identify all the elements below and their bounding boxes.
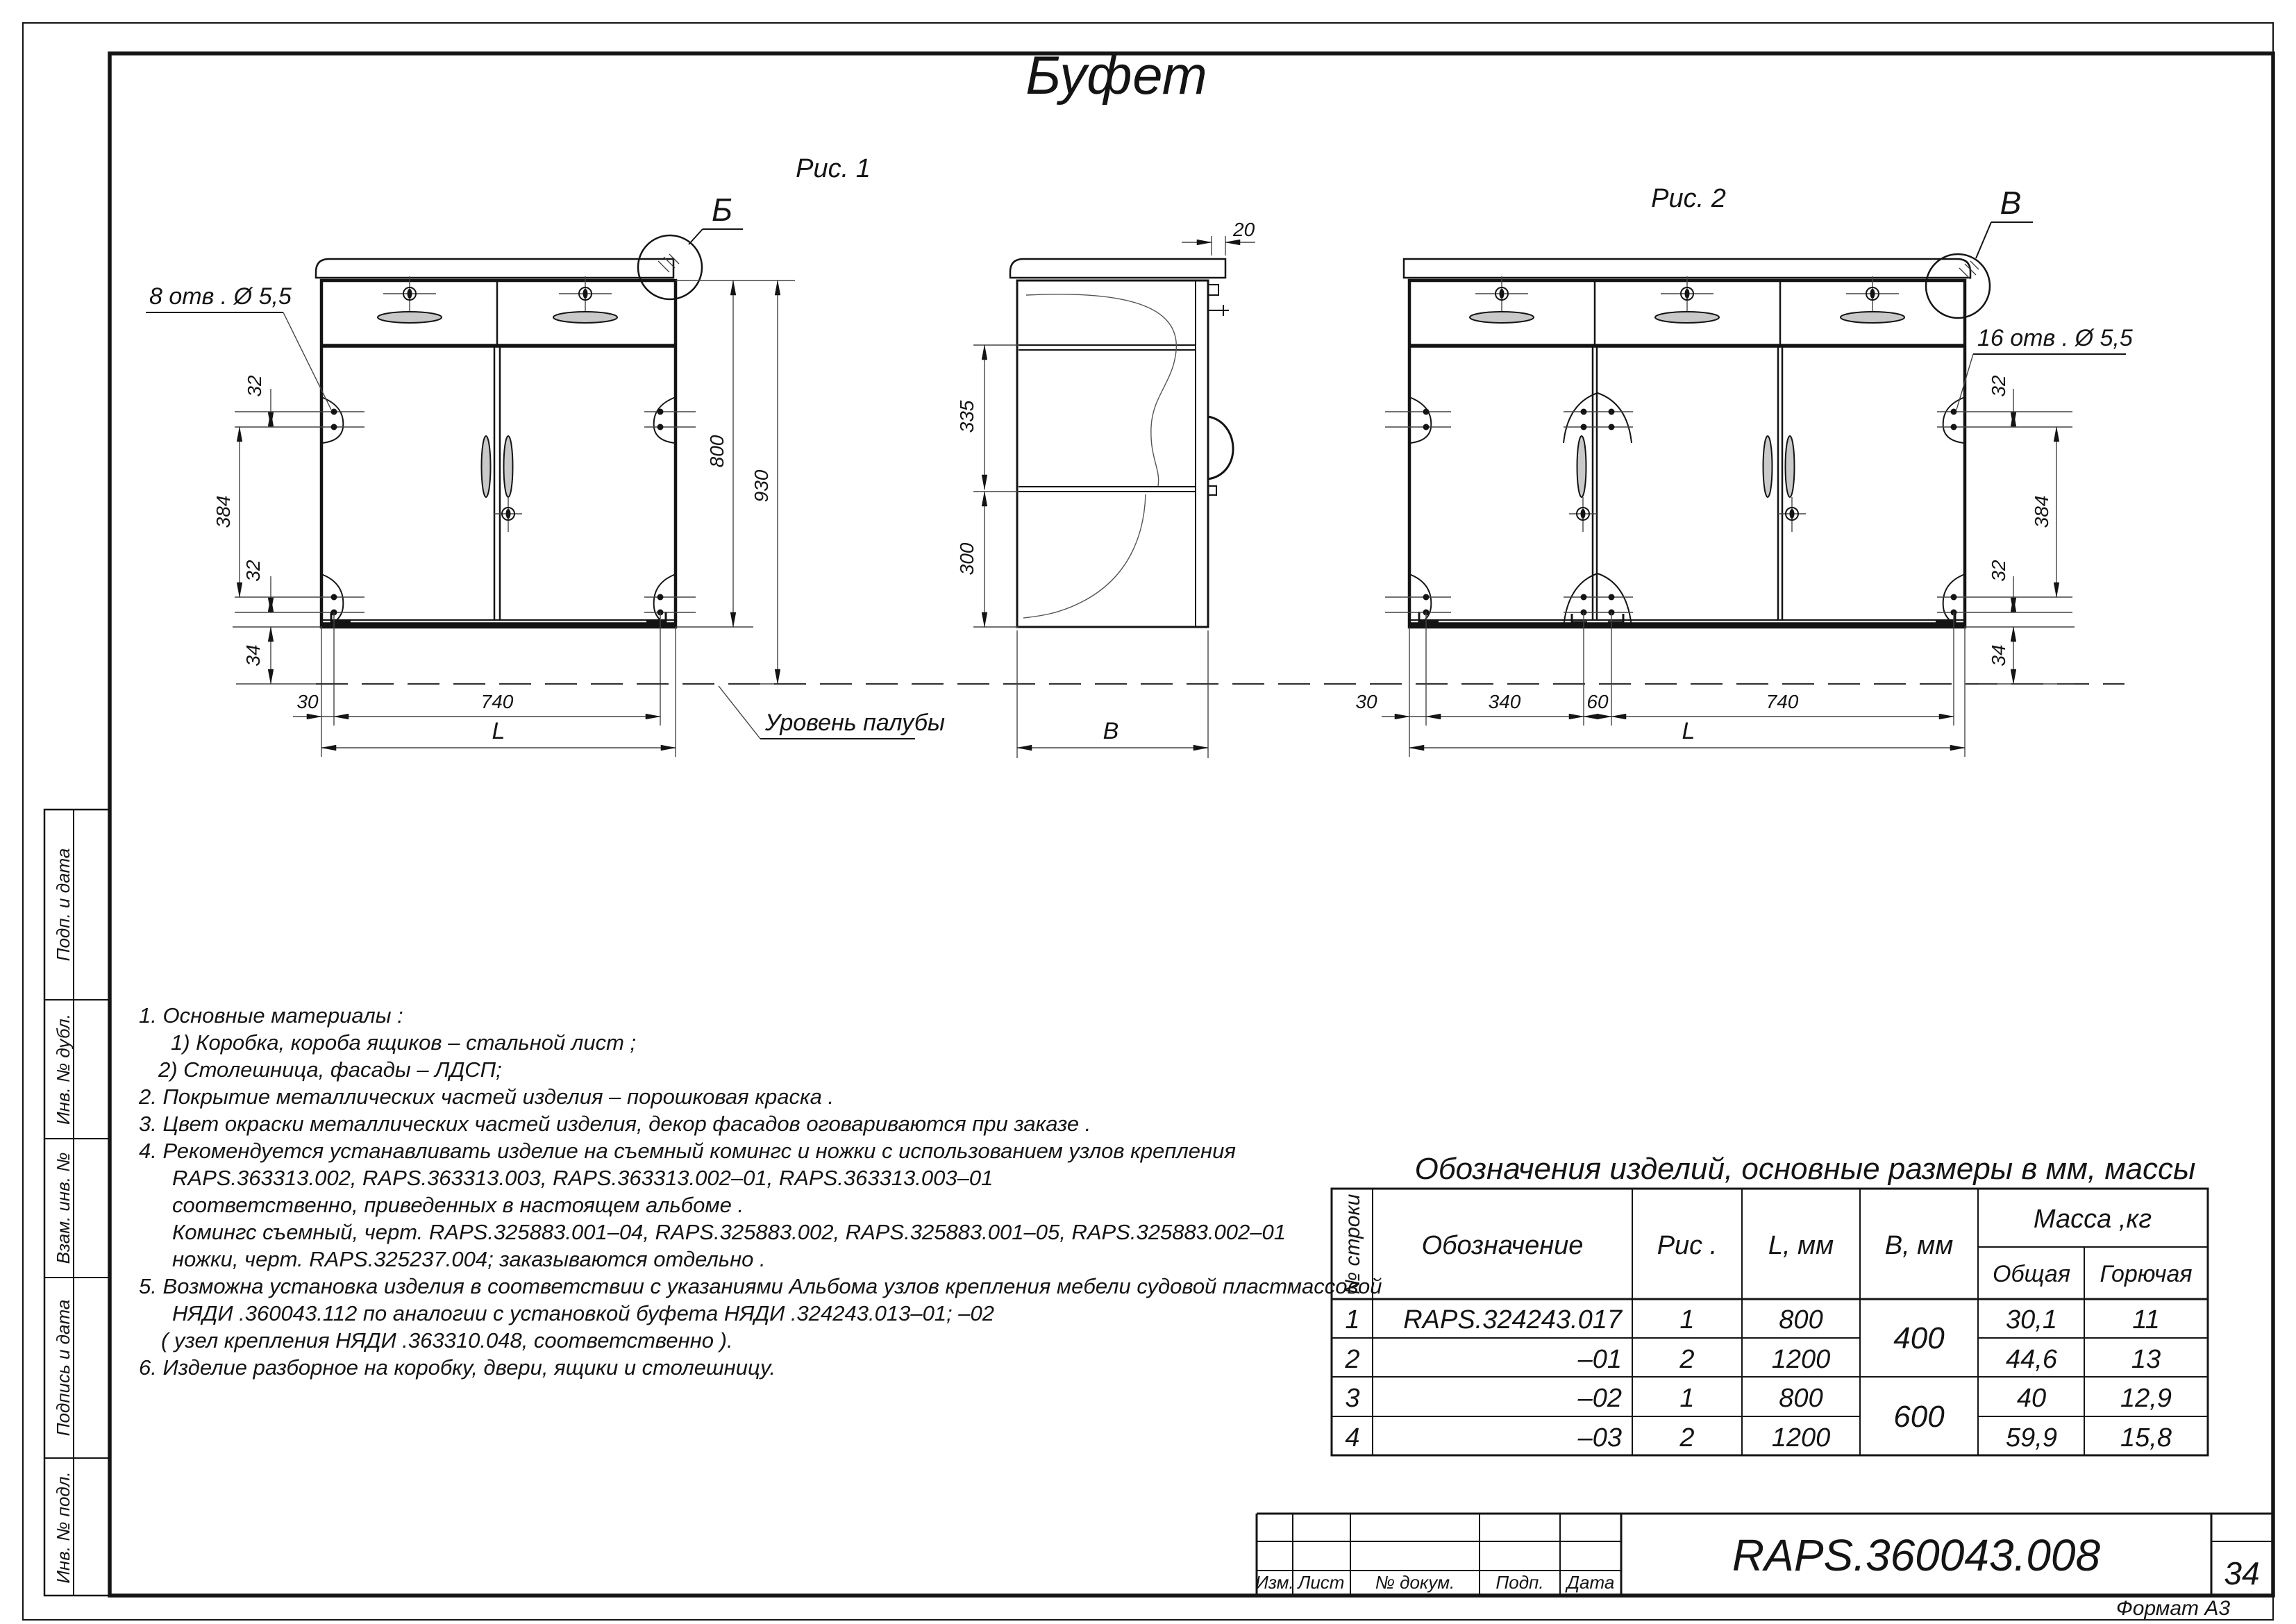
dim-30: 30 [1355,691,1377,712]
dim-740: 740 [1766,691,1799,712]
cell-b-merged: 400 [1893,1321,1945,1355]
sidebar-label: Инв. № подл. [53,1471,74,1583]
side-dims: 20 335 300 B [956,219,1255,758]
header-fig: Рис . [1657,1231,1718,1260]
dim-32: 32 [1988,560,2009,582]
doc-number: RAPS.360043.008 [1732,1530,2101,1580]
dim-384: 384 [212,496,234,528]
page-title: Буфет [1025,44,1207,106]
note-line: ( узел крепления НЯДИ .363310.048, соотв… [161,1328,733,1353]
header-b: В, мм [1885,1231,1954,1260]
sidebar-label: Подп. и дата [53,848,74,962]
sheet-number: 34 [2224,1555,2259,1591]
cell: 12,9 [2120,1384,2172,1413]
note-line: 3. Цвет окраски металлических частей изд… [139,1112,1091,1136]
dim-20: 20 [1232,219,1255,240]
fig1-dims-left: 32 384 32 34 [212,375,321,684]
dim-B: B [1103,718,1119,744]
dim-384: 384 [2031,496,2052,528]
sidebar-label: Подпись и дата [53,1300,74,1437]
header-mass-flammable: Горючая [2100,1261,2192,1287]
title-block: Изм. Лист № докум. Подп. Дата RAPS.36004… [1255,1514,2273,1620]
cell: 2 [1344,1345,1359,1374]
cell: 44,6 [2006,1345,2058,1374]
fig1-mounting-holes [235,409,696,616]
svg-text:8 отв . Ø 5,5: 8 отв . Ø 5,5 [149,283,292,310]
cell: 1 [1345,1305,1359,1334]
header-mass: Масса ,кг [2034,1205,2152,1234]
cell: 30,1 [2006,1305,2057,1334]
fig2-detail-label: В [2000,185,2022,221]
tb-label-doc-no: № докум. [1375,1572,1455,1593]
cell: 4 [1345,1423,1359,1453]
fig2-front-view: Рис. 2 [1355,184,2132,757]
fig1-detail-label: Б [712,192,732,228]
side-hidden-contour-lower [1023,494,1146,618]
fig2-drawer-hardware [1470,276,1904,323]
dim-L: L [492,718,505,744]
dim-32: 32 [244,375,265,397]
dim-60: 60 [1586,691,1609,712]
parts-table-title: Обозначения изделий, основные размеры в … [1415,1152,2196,1186]
drawing-canvas: Подп. и дата Инв. № дубл. Взам. инв. № П… [0,0,2296,1624]
dim-L: L [1682,718,1695,744]
cell: 1200 [1772,1423,1831,1453]
tb-label-data: Дата [1565,1572,1615,1593]
note-line: RAPS.363313.002, RAPS.363313.003, RAPS.3… [172,1166,993,1190]
deck-label: Уровень палубы [764,710,945,736]
dim-340: 340 [1489,691,1521,712]
dim-740: 740 [481,691,514,712]
fig2-callout: 16 отв . Ø 5,5 [1956,325,2133,410]
note-line: соответственно, приведенных в настоящем … [172,1193,744,1217]
dim-32: 32 [242,560,264,582]
dim-34: 34 [242,644,264,666]
sidebar-label: Взам. инв. № [53,1153,74,1264]
cell: 800 [1779,1305,1822,1334]
fig1-leg-brackets [321,397,676,627]
fig2-door-hardware [1569,436,1806,532]
tb-label-izm: Изм. [1255,1572,1293,1593]
fig2-mounting-holes [1385,409,2072,616]
dim-300: 300 [956,542,978,575]
cell: 13 [2131,1345,2161,1374]
notes-block: 1. Основные материалы : 1) Коробка, коро… [138,1003,1382,1380]
note-line: 6. Изделие разборное на коробку, двери, … [139,1355,776,1380]
note-line: 2) Столешница, фасады – ЛДСП; [158,1057,502,1082]
cell-b-merged: 600 [1893,1400,1945,1434]
cell: 15,8 [2120,1423,2172,1453]
fig1-detail-b: Б [638,192,743,299]
format-label: Формат А3 [2116,1597,2230,1620]
fig2-dims-right: 32 384 32 34 [1965,375,2075,684]
dim-30: 30 [296,691,319,712]
cell: 800 [1779,1384,1822,1413]
sidebar-strip: Подп. и дата Инв. № дубл. Взам. инв. № П… [44,810,110,1596]
side-hidden-contour-upper [1026,294,1176,486]
tb-label-list: Лист [1297,1572,1345,1593]
fig1-callout: 8 отв . Ø 5,5 [146,283,331,410]
fig1-door-hardware [482,436,523,532]
header-l: L, мм [1768,1231,1834,1260]
deck-level: Уровень палубы [316,684,2125,739]
cell: 2 [1679,1423,1694,1453]
note-line: 2. Покрытие металлических частей изделия… [138,1085,834,1109]
cell: 1200 [1772,1345,1831,1374]
fig1-dims-right: 800 930 [676,281,797,684]
sidebar-label: Инв. № дубл. [53,1014,74,1125]
header-row-no: № строки [1341,1194,1364,1294]
parts-table-headers: № строки Обозначение Рис . L, мм В, мм М… [1341,1194,2193,1294]
fig2-caption: Рис. 2 [1651,184,1726,213]
header-mass-total: Общая [1993,1261,2070,1287]
fig1-front-view: Рис. 1 [146,154,871,757]
note-line: 4. Рекомендуется устанавливать изделие н… [139,1139,1236,1163]
parts-table: Обозначения изделий, основные размеры в … [1332,1152,2208,1455]
svg-text:16 отв . Ø 5,5: 16 отв . Ø 5,5 [1977,325,2133,351]
cell: 1 [1679,1384,1694,1413]
dim-32: 32 [1988,375,2009,397]
cell: 1 [1679,1305,1694,1334]
header-designation: Обозначение [1422,1231,1584,1260]
note-line: 1) Коробка, короба ящиков – стальной лис… [171,1030,636,1055]
cell: 40 [2017,1384,2046,1413]
cell: 59,9 [2006,1423,2057,1453]
note-line: Комингс съемный, черт. RAPS.325883.001–0… [172,1220,1286,1244]
cell: 11 [2132,1305,2159,1334]
cell: 3 [1345,1384,1359,1413]
tb-label-podp: Подп. [1495,1572,1543,1593]
note-line: 5. Возможна установка изделия в соответс… [139,1274,1382,1298]
cell: –01 [1577,1345,1622,1374]
side-hardware [1208,285,1233,495]
cell: RAPS.324243.017 [1403,1305,1623,1334]
note-line: НЯДИ .360043.112 по аналогии с установко… [172,1301,994,1325]
cell: 2 [1679,1345,1694,1374]
cell: –02 [1577,1384,1622,1413]
drawing-sheet: Подп. и дата Инв. № дубл. Взам. инв. № П… [0,0,2296,1624]
note-line: ножки, черт. RAPS.325237.004; заказывают… [172,1247,766,1271]
dim-930: 930 [751,469,772,502]
note-line: 1. Основные материалы : [139,1003,403,1028]
parts-table-rows: 1 RAPS.324243.017 1 800 30,1 11 2 –01 2 … [1344,1305,2172,1453]
fig2-detail-v: В [1926,185,2033,318]
dim-800: 800 [706,435,728,467]
dim-34: 34 [1988,644,2009,666]
dim-335: 335 [956,400,978,433]
fig1-caption: Рис. 1 [796,154,871,183]
side-view: 20 335 300 B [956,219,1255,758]
fig2-leg-brackets [1409,393,1965,627]
cell: –03 [1577,1423,1622,1453]
